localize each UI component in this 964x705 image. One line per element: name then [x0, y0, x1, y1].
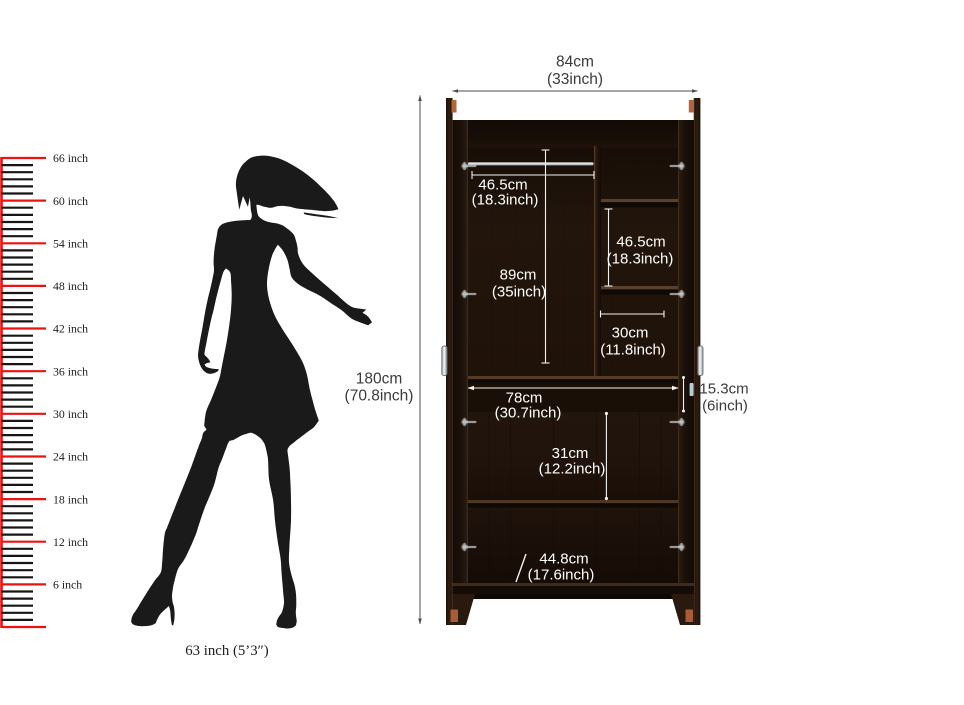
svg-text:(11.8inch): (11.8inch): [600, 342, 666, 359]
svg-text:15.3cm: 15.3cm: [699, 381, 748, 398]
svg-text:60 inch: 60 inch: [53, 194, 88, 208]
svg-text:63 inch (5’3″): 63 inch (5’3″): [185, 643, 268, 659]
svg-text:12 inch: 12 inch: [53, 535, 88, 549]
svg-text:89cm: 89cm: [500, 267, 537, 284]
svg-text:18 inch: 18 inch: [53, 492, 88, 506]
svg-text:(70.8inch): (70.8inch): [345, 388, 414, 405]
svg-text:(30.7inch): (30.7inch): [495, 405, 562, 422]
svg-text:30cm: 30cm: [612, 325, 649, 342]
svg-text:44.8cm: 44.8cm: [539, 551, 588, 568]
svg-text:6 inch: 6 inch: [53, 578, 82, 592]
svg-text:(35inch): (35inch): [492, 284, 546, 301]
svg-text:(12.2inch): (12.2inch): [539, 461, 606, 478]
svg-text:(33inch): (33inch): [547, 71, 603, 88]
svg-text:(17.6inch): (17.6inch): [528, 567, 595, 584]
svg-text:30 inch: 30 inch: [53, 407, 88, 421]
svg-text:54 inch: 54 inch: [53, 237, 88, 251]
svg-text:48 inch: 48 inch: [53, 279, 88, 293]
svg-text:46.5cm: 46.5cm: [616, 234, 665, 251]
svg-text:66 inch: 66 inch: [53, 151, 88, 165]
svg-text:42 inch: 42 inch: [53, 322, 88, 336]
svg-text:84cm: 84cm: [556, 54, 594, 71]
svg-text:(18.3inch): (18.3inch): [607, 251, 674, 268]
svg-text:180cm: 180cm: [356, 371, 403, 388]
svg-text:31cm: 31cm: [552, 445, 589, 462]
svg-text:(18.3inch): (18.3inch): [472, 192, 539, 209]
svg-text:24 inch: 24 inch: [53, 450, 88, 464]
svg-text:(6inch): (6inch): [702, 398, 748, 415]
svg-text:36 inch: 36 inch: [53, 364, 88, 378]
